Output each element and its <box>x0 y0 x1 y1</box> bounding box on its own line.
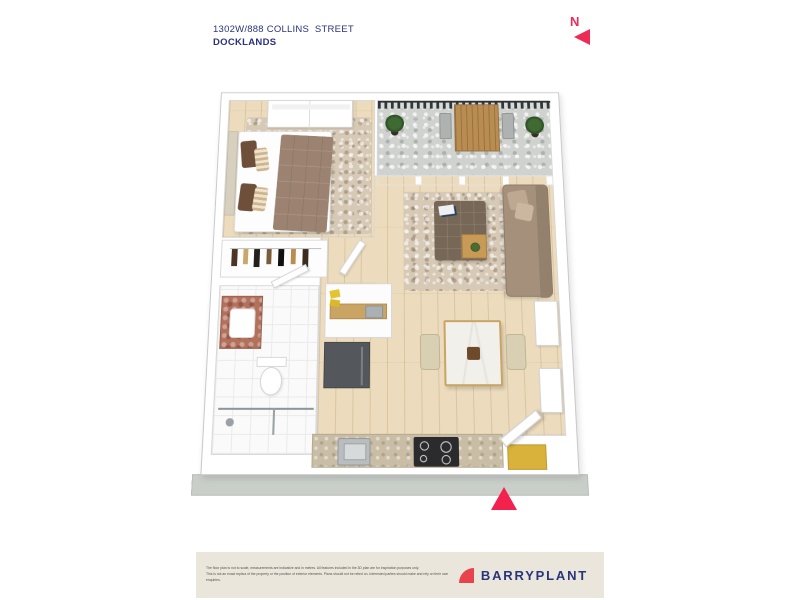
kitchen-sink <box>337 438 370 466</box>
brand-logo: BARRYPLANT <box>459 568 588 583</box>
hanging-clothes <box>231 249 238 266</box>
hanging-clothes <box>291 249 296 264</box>
cooktop <box>414 437 460 467</box>
wall-cabinet <box>534 301 560 346</box>
footer-bar: The floor plan is not to scale, measurem… <box>196 552 604 598</box>
outdoor-table <box>454 104 500 151</box>
refrigerator <box>323 342 370 388</box>
towels <box>329 299 340 307</box>
brand-sail-icon <box>459 568 474 583</box>
address-line: 1302W/888 COLLINS STREET <box>213 24 354 35</box>
sofa-cushion <box>514 202 534 222</box>
basin <box>229 308 256 337</box>
hanging-clothes <box>266 249 271 264</box>
laundry-nook <box>324 283 392 338</box>
plan-base <box>191 474 589 496</box>
bathroom-floor <box>211 285 320 455</box>
plant <box>470 243 480 252</box>
balcony-floor <box>377 100 553 175</box>
side-tray <box>461 234 487 258</box>
bed-pillow <box>252 187 269 212</box>
centerpiece <box>467 347 480 360</box>
north-label: N <box>570 14 579 29</box>
closet <box>220 240 328 278</box>
shower-glass <box>272 408 275 435</box>
kitchen-counter <box>311 434 503 468</box>
toilet-bowl <box>259 367 282 395</box>
potted-plant <box>385 115 404 132</box>
wall-cabinet <box>539 368 563 413</box>
north-arrow-icon <box>574 29 590 45</box>
bathroom-vanity <box>219 296 263 349</box>
brand-name: BARRYPLANT <box>481 568 588 583</box>
disclaimer-line: This is not an exact replica of the prop… <box>206 572 454 584</box>
shower-glass <box>218 408 314 410</box>
coffee-table <box>434 201 487 261</box>
floor-plan <box>207 74 577 534</box>
bed-duvet <box>273 134 334 232</box>
wardrobe <box>267 100 353 128</box>
dining-table <box>443 320 503 386</box>
bed <box>234 131 332 232</box>
suburb-line: DOCKLANDS <box>213 37 354 48</box>
hanging-clothes <box>278 249 284 266</box>
dining-chair <box>505 334 526 370</box>
entry-mat <box>507 444 547 470</box>
bed-pillow <box>254 147 270 172</box>
laundry-sink <box>365 306 383 319</box>
toilet <box>256 357 286 367</box>
header: 1302W/888 COLLINS STREET DOCKLANDS <box>213 24 354 48</box>
disclaimer-text: The floor plan is not to scale, measurem… <box>206 566 454 583</box>
page: 1302W/888 COLLINS STREET DOCKLANDS N <box>0 0 800 600</box>
dining-chair <box>420 334 440 370</box>
shower-head <box>225 418 234 426</box>
potted-plant <box>525 116 544 133</box>
towels <box>329 289 340 299</box>
hanging-clothes <box>254 249 261 267</box>
outdoor-chair <box>439 113 452 139</box>
sofa <box>502 185 553 297</box>
outdoor-chair <box>502 113 515 139</box>
entry-arrow-icon <box>491 487 517 510</box>
hanging-clothes <box>243 249 249 264</box>
magazines <box>438 204 455 215</box>
